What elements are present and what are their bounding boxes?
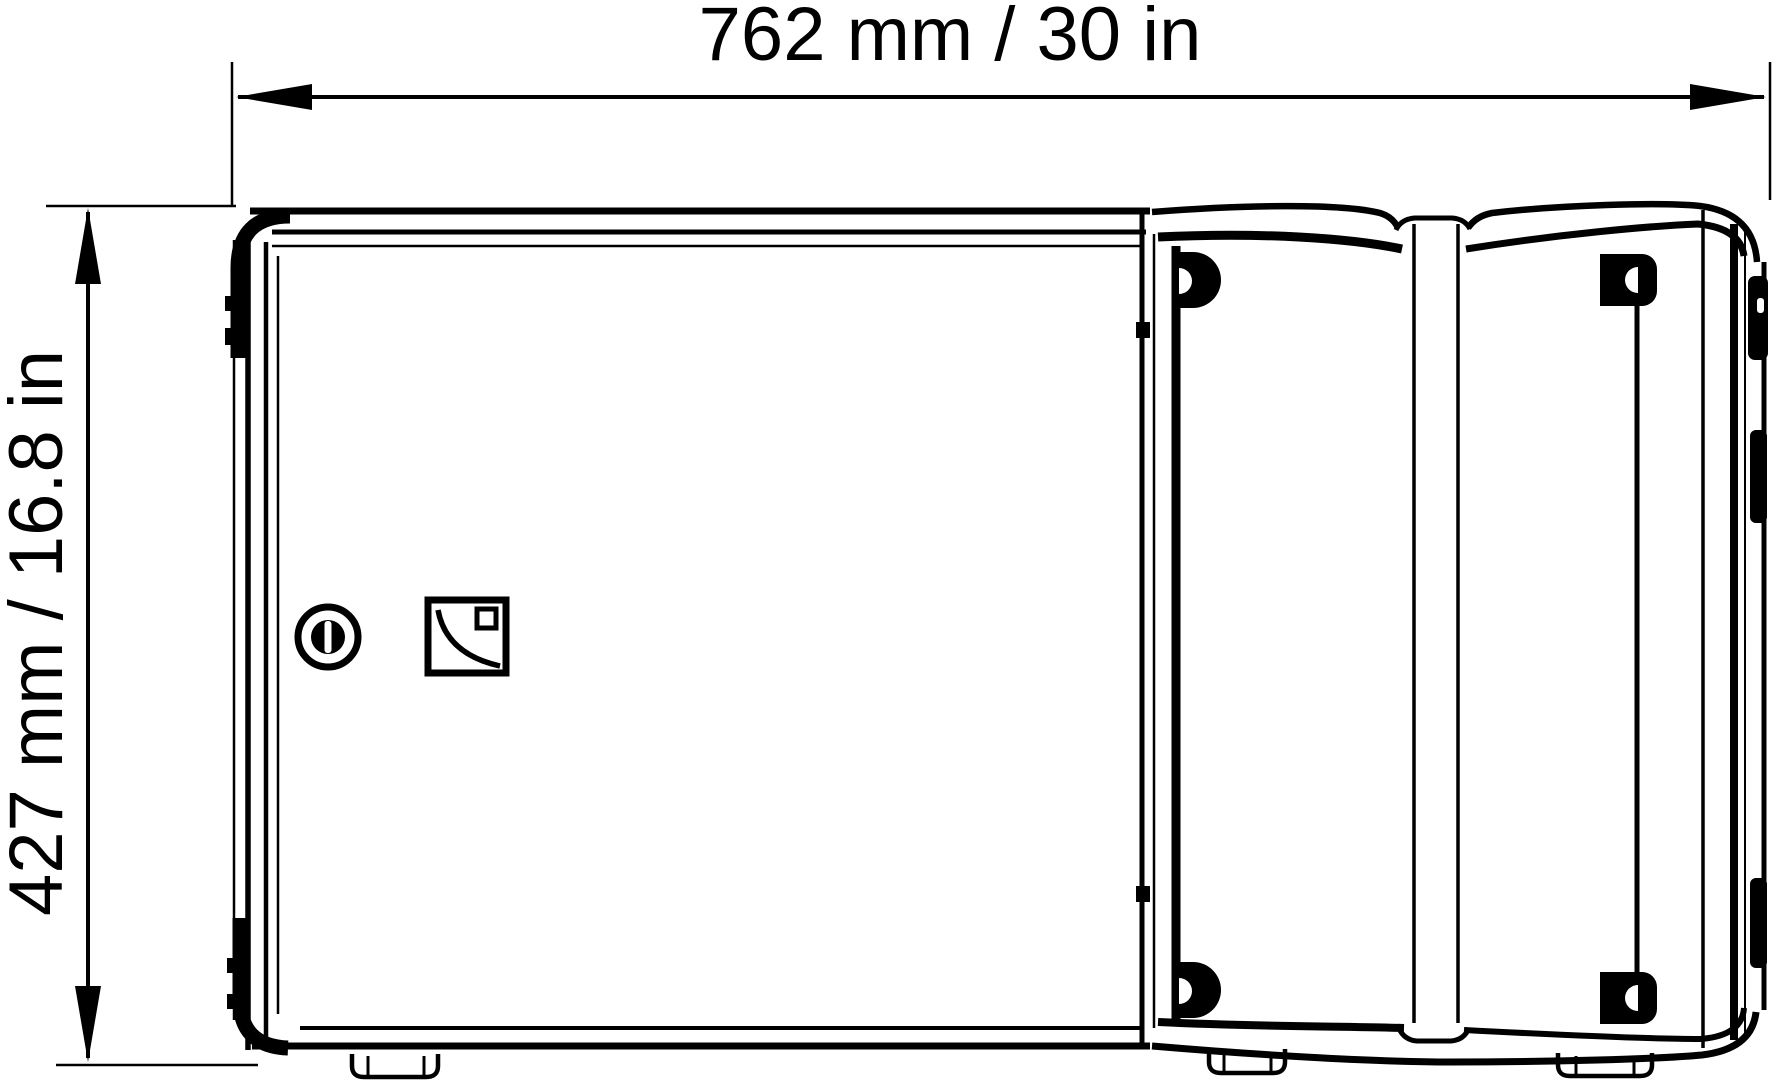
cabinet-top-view [225,204,1768,1077]
corner-bracket-notch [225,328,238,345]
rear-rigging-section [1152,204,1768,1062]
panel-joint-notch [1136,886,1150,902]
corner-bracket-notch [225,296,238,311]
hinge-detail [1748,276,1768,360]
corner-bracket-notch [227,994,240,1009]
arrowhead-right-icon [1690,84,1766,110]
front-enclosure [225,211,1154,1050]
hinge-detail [1750,430,1767,523]
l-acoustics-logo-icon [428,600,506,673]
rear-bottom-bridge [1398,1026,1469,1041]
hinge-slot [1757,298,1764,313]
height-dimension: 427 mm / 16.8 in [0,206,258,1065]
dimension-drawing: 762 mm / 30 in 427 mm / 16.8 in [0,0,1775,1080]
rear-top-edge-left [1152,206,1398,228]
corner-bracket-notch [227,958,240,973]
hinge-detail [1750,878,1767,968]
arrowhead-down-icon [75,986,101,1062]
slot-latch-icon [298,607,358,667]
rear-bottom-inner-left [1158,1022,1404,1028]
height-dimension-label: 427 mm / 16.8 in [0,350,79,916]
width-dimension-label: 762 mm / 30 in [699,0,1202,77]
width-dimension: 762 mm / 30 in [232,0,1770,206]
arrowhead-left-icon [236,84,312,110]
arrowhead-up-icon [75,208,101,284]
rear-top-inner-left [1158,235,1402,249]
panel-joint-notch [1136,322,1150,338]
